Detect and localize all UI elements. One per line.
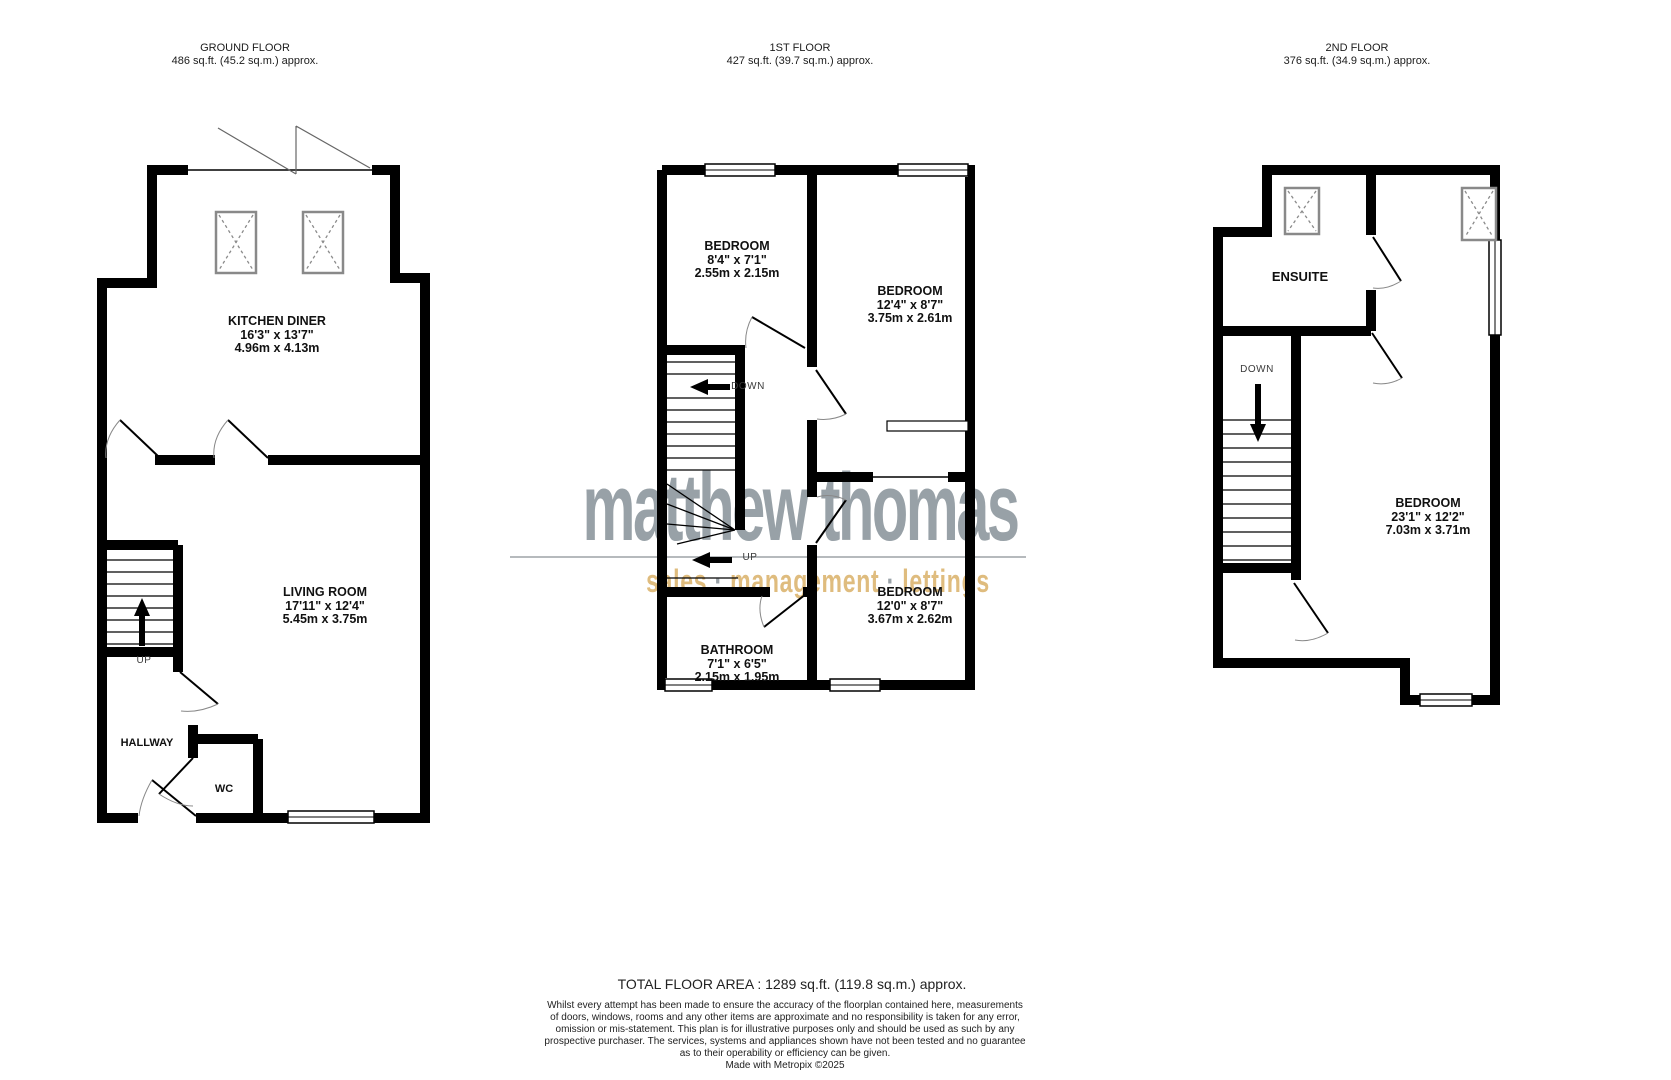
room-label-living-room: LIVING ROOM 17'11" x 12'4" 5.45m x 3.75m <box>283 586 368 627</box>
room-dim-imperial: 8'4" x 7'1" <box>695 254 780 268</box>
floor-area: 427 sq.ft. (39.7 sq.m.) approx. <box>727 55 874 68</box>
room-name: BEDROOM <box>695 240 780 254</box>
disclaimer-line: of doors, windows, rooms and any other i… <box>544 1012 1025 1024</box>
stairs-down-label-first: DOWN <box>731 381 765 392</box>
room-dim-imperial: 7'1" x 6'5" <box>695 658 780 672</box>
skylight-icon <box>1462 188 1496 240</box>
disclaimer-line: Whilst every attempt has been made to en… <box>544 1000 1025 1012</box>
skylight-icon <box>303 212 343 273</box>
floor-area: 376 sq.ft. (34.9 sq.m.) approx. <box>1284 55 1431 68</box>
skylight-icon <box>216 212 256 273</box>
second-floor-header: 2ND FLOOR 376 sq.ft. (34.9 sq.m.) approx… <box>1284 42 1431 68</box>
room-dim-metric: 4.96m x 4.13m <box>228 342 326 356</box>
metropix-credit: Made with Metropix ©2025 <box>544 1060 1025 1072</box>
room-name: BEDROOM <box>868 586 953 600</box>
room-dim-imperial: 16'3" x 13'7" <box>228 329 326 343</box>
room-dim-metric: 2.55m x 2.15m <box>695 267 780 281</box>
room-name: KITCHEN DINER <box>228 315 326 329</box>
stairs-down-label-second: DOWN <box>1240 364 1274 375</box>
window-icon <box>830 678 880 692</box>
total-floor-area: TOTAL FLOOR AREA : 1289 sq.ft. (119.8 sq… <box>618 976 967 992</box>
room-name: BEDROOM <box>868 285 953 299</box>
room-label-bedroom2: BEDROOM 12'4" x 8'7" 3.75m x 2.61m <box>868 285 953 326</box>
wardrobe-icon <box>887 421 968 431</box>
room-dim-imperial: 12'4" x 8'7" <box>868 299 953 313</box>
room-label-bedroom1: BEDROOM 8'4" x 7'1" 2.55m x 2.15m <box>695 240 780 281</box>
room-dim-imperial: 12'0" x 8'7" <box>868 600 953 614</box>
floorplan-drawing <box>0 0 1671 1080</box>
room-label-bathroom: BATHROOM 7'1" x 6'5" 2.15m x 1.95m <box>695 644 780 685</box>
disclaimer-block: Whilst every attempt has been made to en… <box>544 1000 1025 1071</box>
floorplan-page: { "floors": [ {"title": "GROUND FLOOR", … <box>0 0 1671 1080</box>
room-label-kitchen-diner: KITCHEN DINER 16'3" x 13'7" 4.96m x 4.13… <box>228 315 326 356</box>
ground-floor-header: GROUND FLOOR 486 sq.ft. (45.2 sq.m.) app… <box>172 42 319 68</box>
stairs-second <box>1223 384 1291 560</box>
stairs-up-label-ground: UP <box>137 655 152 666</box>
room-label-ensuite: ENSUITE <box>1272 269 1328 284</box>
room-dim-metric: 5.45m x 3.75m <box>283 613 368 627</box>
floor-area: 486 sq.ft. (45.2 sq.m.) approx. <box>172 55 319 68</box>
room-dim-metric: 3.67m x 2.62m <box>868 613 953 627</box>
window-icon <box>1488 240 1502 335</box>
ground-floor-plan <box>102 126 425 824</box>
room-dim-metric: 3.75m x 2.61m <box>868 312 953 326</box>
window-icon <box>898 163 968 177</box>
room-name: BEDROOM <box>1386 497 1471 511</box>
room-label-wc: WC <box>215 783 233 795</box>
down-arrow-icon <box>1250 424 1266 442</box>
room-label-hallway: HALLWAY <box>121 737 174 749</box>
room-name: LIVING ROOM <box>283 586 368 600</box>
door-swings-second <box>1294 237 1402 641</box>
door-swings-ground <box>106 420 268 816</box>
disclaimer-line: prospective purchaser. The services, sys… <box>544 1036 1025 1048</box>
floor-title: 2ND FLOOR <box>1284 42 1431 55</box>
window-icon <box>1420 693 1472 707</box>
floor-title: 1ST FLOOR <box>727 42 874 55</box>
room-label-bedroom3: BEDROOM 12'0" x 8'7" 3.67m x 2.62m <box>868 586 953 627</box>
patio-door-icon <box>218 126 370 174</box>
disclaimer-line: as to their operability or efficiency ca… <box>544 1048 1025 1060</box>
disclaimer-line: omission or mis-statement. This plan is … <box>544 1024 1025 1036</box>
floor-title: GROUND FLOOR <box>172 42 319 55</box>
up-arrow-icon <box>692 552 710 568</box>
stairs-first <box>667 362 738 578</box>
room-name: BATHROOM <box>695 644 780 658</box>
window-icon <box>288 810 374 824</box>
room-dim-metric: 7.03m x 3.71m <box>1386 524 1471 538</box>
first-floor-header: 1ST FLOOR 427 sq.ft. (39.7 sq.m.) approx… <box>727 42 874 68</box>
room-label-bedroom4: BEDROOM 23'1" x 12'2" 7.03m x 3.71m <box>1386 497 1471 538</box>
room-dim-imperial: 23'1" x 12'2" <box>1386 511 1471 525</box>
room-dim-imperial: 17'11" x 12'4" <box>283 600 368 614</box>
skylight-icon <box>1285 188 1319 234</box>
stairs-ground <box>107 560 173 646</box>
down-arrow-icon <box>690 379 708 395</box>
stairs-up-label-first: UP <box>743 552 758 563</box>
second-floor-plan <box>1218 165 1502 707</box>
room-dim-metric: 2.15m x 1.95m <box>695 671 780 685</box>
window-icon <box>705 163 775 177</box>
up-arrow-icon <box>134 598 150 616</box>
